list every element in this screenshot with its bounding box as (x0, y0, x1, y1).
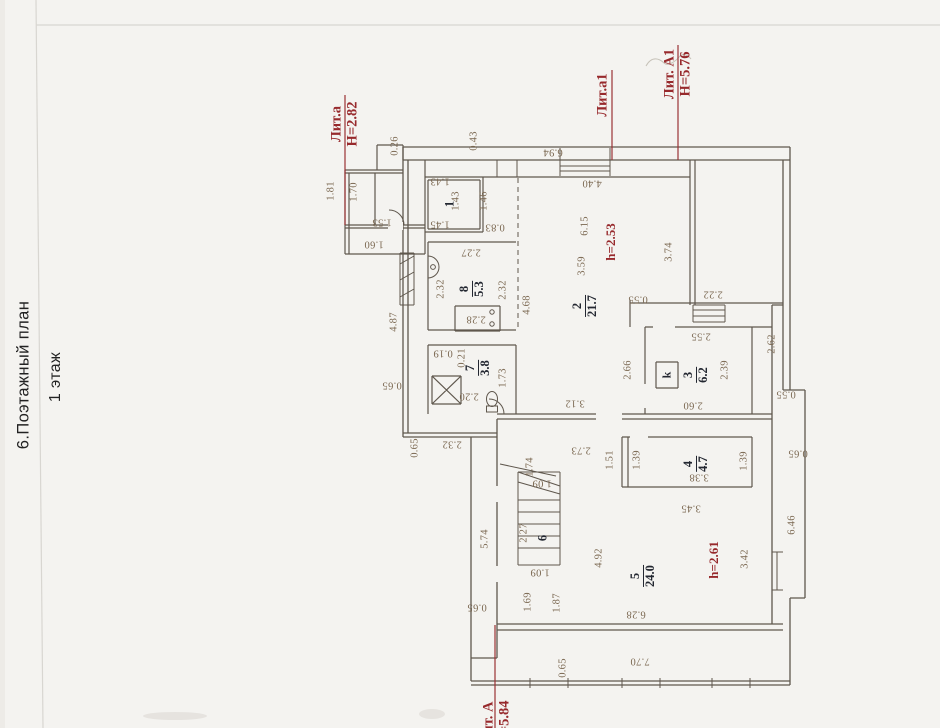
dimension-label: 0.43 (469, 131, 480, 151)
dimension-label: 1.70 (349, 182, 360, 202)
dimension-label: 0.65 (558, 658, 569, 678)
room-label: 221.7 (571, 295, 599, 317)
plumbing-fixtures (389, 210, 504, 414)
dimension-label: 4.40 (582, 178, 602, 189)
page-title: 6.Поэтажный план (15, 301, 34, 449)
room-number: 1 (444, 201, 457, 207)
sink-drain-icon (431, 265, 436, 270)
room-label: 44.7 (682, 456, 710, 472)
dimension-label: 0.55 (628, 294, 648, 305)
dimension-label: 4.92 (594, 548, 605, 568)
dimension-label: 3.42 (740, 549, 751, 569)
bath-tap-icon (490, 322, 494, 326)
dimension-label: 1.74 (525, 457, 536, 477)
dimension-label: 0.83 (485, 222, 505, 233)
dimension-label: 6.15 (580, 216, 591, 236)
dimension-label: 0.65 (410, 438, 421, 458)
dimension-label: 1.46 (479, 191, 490, 211)
room-area: 21.7 (586, 295, 599, 317)
liter-label-line: Н=2.82 (345, 102, 361, 147)
dimension-label: 1.39 (632, 450, 643, 470)
room-label: 1 (444, 201, 457, 207)
liter-label: Лит.а1 (595, 73, 611, 116)
dimension-label: 4.68 (522, 295, 533, 315)
dimension-label: 0.65 (382, 380, 402, 391)
room-number: 8 (458, 281, 471, 297)
room-number: 2 (571, 295, 584, 317)
dimension-label: 1.43 (430, 176, 450, 187)
dimension-label: 4.87 (389, 312, 400, 332)
room-label: 73.8 (464, 360, 492, 376)
dimension-label: 2.32 (498, 280, 509, 300)
dimension-label: 0.19 (433, 348, 453, 359)
floor-plan-page: 6.Поэтажный план 1 этаж 0.260.436.944.40… (0, 0, 940, 728)
dimension-label: 2.22 (703, 289, 723, 300)
liter-label-line: Лит.а (330, 102, 346, 147)
liter-label-line: Лит.а1 (595, 73, 611, 116)
dimension-label: 1.69 (523, 592, 534, 612)
dimension-label: 1.53 (372, 217, 392, 228)
dimension-label: 1.73 (498, 368, 509, 388)
dimension-label: 0.26 (390, 136, 401, 156)
liter-label-line: Лит. А1 (663, 49, 679, 99)
dimension-label: 2.60 (683, 400, 703, 411)
dimension-label: 2.32 (436, 279, 447, 299)
room-label: 524.0 (629, 565, 657, 587)
dimension-label: 3.74 (664, 242, 675, 262)
floor-subtitle: 1 этаж (47, 352, 65, 402)
dimension-label: 0.65 (788, 448, 808, 459)
room-number: 3 (682, 367, 695, 383)
dimension-label: 2.73 (571, 445, 591, 456)
dimension-label: 1.39 (739, 451, 750, 471)
dimension-label: 3.59 (577, 256, 588, 276)
room-area: 6.2 (697, 367, 710, 383)
liter-label-line: Н=5.76 (678, 49, 694, 99)
room-number: 6 (537, 535, 550, 541)
liter-label: Лит. АН=5.84 (482, 701, 513, 728)
dimension-label: 7.70 (630, 656, 650, 667)
dimension-label: 1.51 (605, 450, 616, 470)
ceiling-height-label: h=2.53 (603, 223, 619, 260)
room-label: 36.2 (682, 367, 710, 383)
bath-tap-icon (490, 310, 494, 314)
room-area: 4.7 (697, 456, 710, 472)
liter-label-line: Лит. А (482, 701, 498, 728)
dimension-label: 1.87 (552, 593, 563, 613)
dimension-label: 2.20 (459, 391, 479, 402)
dimension-label: 1.60 (364, 239, 384, 250)
dimension-label: 2.32 (442, 439, 462, 450)
sink-icon (428, 256, 439, 278)
dimension-label: 2.66 (623, 360, 634, 380)
dimension-label: 2.28 (466, 314, 486, 325)
dimension-label: 3.45 (681, 503, 701, 514)
dimension-label: 1.09 (530, 567, 550, 578)
stove-marker-label: k (660, 372, 675, 379)
dimension-label: 6.46 (787, 515, 798, 535)
liter-label: Лит. А1Н=5.76 (663, 49, 694, 99)
liter-label-line: Н=5.84 (497, 701, 513, 728)
dimension-label: 2.39 (720, 360, 731, 380)
room-label: 85.3 (458, 281, 486, 297)
liter-label: Лит.аН=2.82 (330, 102, 361, 147)
dimension-label: 2.55 (691, 331, 711, 342)
room-area: 3.8 (479, 360, 492, 376)
ceiling-height-label: h=2.61 (706, 541, 722, 578)
dimension-label: 2.62 (767, 334, 778, 354)
dimension-label: 0.65 (467, 602, 487, 613)
dimension-label: 0.55 (776, 389, 796, 400)
dimension-label: 6.94 (543, 147, 563, 158)
dimension-label: 2.27 (519, 523, 530, 543)
dimension-label: 1.45 (430, 219, 450, 230)
room-number: 7 (464, 360, 477, 376)
scan-edge-shadow (0, 0, 5, 728)
scan-smudges (143, 709, 445, 720)
room-area: 5.3 (473, 281, 486, 297)
door-openings (388, 222, 675, 582)
room-number: 5 (629, 565, 642, 587)
dimension-label: 1.09 (532, 478, 552, 489)
dimension-label: 5.74 (480, 529, 491, 549)
dimension-label: 6.28 (626, 609, 646, 620)
room-number: 4 (682, 456, 695, 472)
dimension-label: 1.81 (326, 181, 337, 201)
dimension-label: 2.27 (461, 247, 481, 258)
dimension-label: 3.12 (565, 398, 585, 409)
room-area: 24.0 (644, 565, 657, 587)
room-label: 6 (537, 535, 550, 541)
dimension-label: 3.38 (689, 472, 709, 483)
